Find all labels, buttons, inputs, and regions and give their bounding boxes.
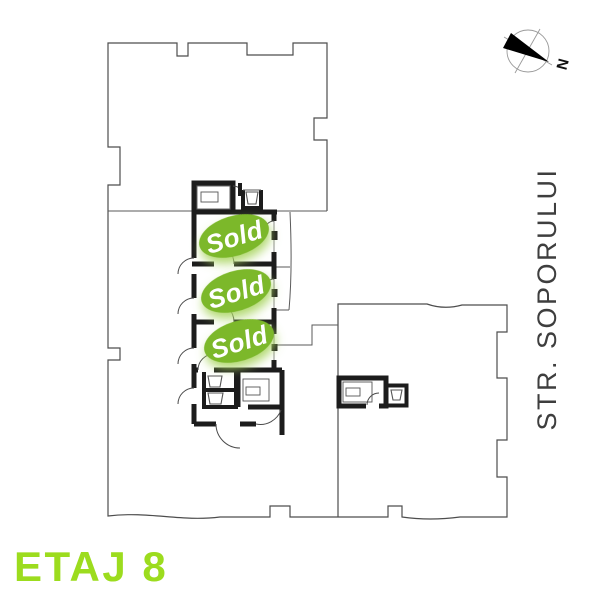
sold-badge-1[interactable]: Sold	[194, 206, 275, 265]
sold-badge-2[interactable]: Sold	[196, 261, 277, 320]
stairs-bottom-landing	[246, 387, 260, 395]
stairs-top-landing	[201, 192, 218, 202]
north-label: N	[552, 57, 571, 72]
connector-lines	[276, 325, 338, 345]
elevator-top-car	[246, 192, 258, 204]
terrace-arc-1	[216, 424, 240, 448]
stairs-right-landing	[346, 388, 360, 396]
elevator-cell-car-1	[208, 376, 222, 387]
floorplan-canvas: Sold Sold Sold N STR. SOPORULUI ETAJ 8	[0, 0, 600, 600]
terrace-arc-2	[256, 410, 281, 424]
right-building-core	[339, 378, 407, 406]
floor-title: ETAJ 8	[14, 543, 168, 590]
compass: N	[503, 29, 572, 73]
balcony-arc-4	[178, 388, 194, 404]
balcony-arc-2	[178, 298, 194, 314]
building-outline	[108, 43, 507, 519]
street-label: STR. SOPORULUI	[532, 167, 562, 430]
compass-needle-icon	[503, 33, 549, 62]
sold-badges: Sold Sold Sold	[194, 206, 280, 370]
site-silhouette	[108, 43, 507, 519]
balcony-arc-3	[178, 348, 194, 364]
elevator-right-car	[391, 390, 402, 400]
elevator-cell-car-2	[208, 393, 223, 404]
floorplan-svg: Sold Sold Sold N STR. SOPORULUI ETAJ 8	[0, 0, 600, 600]
balcony-arc-1	[178, 258, 194, 274]
